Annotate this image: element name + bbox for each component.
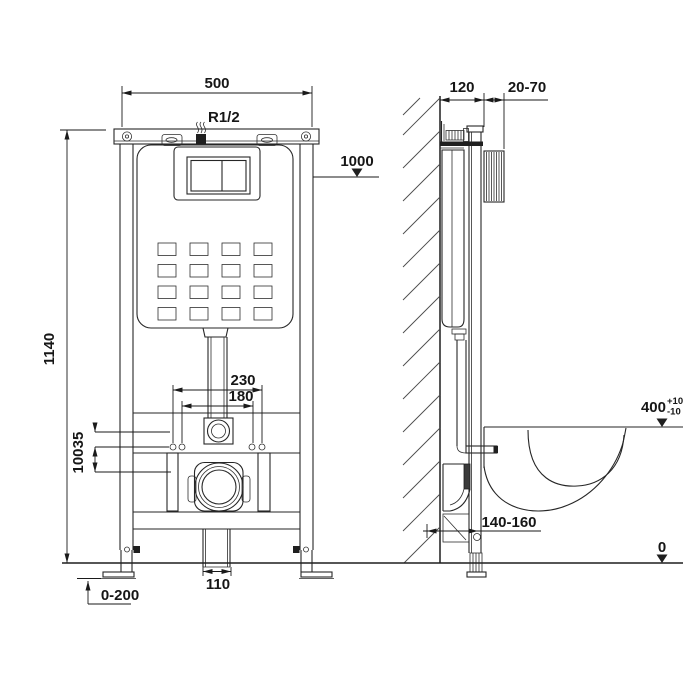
outlet-duct	[203, 529, 230, 567]
adjustable-foot-left	[101, 550, 136, 579]
dim-duct-width: 110	[203, 567, 231, 593]
flush-plate	[174, 147, 260, 200]
dim-bolt-outer-label: 230	[230, 372, 255, 389]
waste-outlet-flange	[188, 463, 250, 512]
bowl-height-label: 400	[641, 399, 666, 416]
outlet-bend-side	[443, 464, 470, 542]
mounting-bolts	[170, 444, 265, 450]
floor-zero-label: 0	[658, 539, 666, 556]
dim-frame-width-label: 500	[204, 75, 229, 92]
side-view-drawing: 120 20-70 400 +10 -10 140-160 0	[403, 79, 683, 577]
front-view-drawing: 500 R1/2 1000 1140 230 180	[41, 75, 379, 604]
finish-plate-block	[484, 151, 504, 202]
dim-duct-width-label: 110	[206, 576, 230, 593]
adjustable-foot-right	[299, 550, 334, 579]
level-marker-1000: 1000	[313, 153, 379, 177]
adjustable-foot-side	[467, 553, 486, 577]
dim-frame-height: 1140	[41, 130, 106, 563]
locking-bolt	[293, 546, 300, 553]
dim-bolt-spacing: 230 180	[173, 372, 262, 443]
bowl-inlet-elbow	[204, 418, 233, 444]
dim-offset-100-label: 100	[70, 448, 87, 473]
dim-feet-range: 0-200	[77, 579, 139, 605]
dim-frame-depth-label: 120	[449, 79, 474, 96]
corner-screw-icon	[301, 132, 310, 141]
insulation-grid	[158, 243, 272, 320]
dim-offset-35-label: 35	[70, 432, 87, 449]
bowl-height-plus-label: +10	[667, 396, 683, 407]
water-inlet-valve-icon	[196, 122, 206, 144]
level-1000-label: 1000	[340, 153, 373, 170]
flush-pipe	[203, 328, 233, 444]
dim-outlet-range-label: 140-160	[481, 514, 536, 531]
dim-finish-range-label: 20-70	[508, 79, 546, 96]
toilet-bowl-profile	[484, 427, 683, 511]
rail-hole	[474, 534, 481, 541]
cistern-tank	[137, 145, 293, 328]
water-inlet-label: R1/2	[208, 109, 240, 126]
dim-frame-height-label: 1140	[41, 333, 58, 366]
dim-bolt-inner-label: 180	[228, 388, 253, 405]
dim-depth-and-finish: 120 20-70	[440, 79, 548, 149]
level-marker-seat-height: 400 +10 -10	[641, 396, 683, 427]
installation-drawing-page: 500 R1/2 1000 1140 230 180	[0, 0, 700, 700]
corner-screw-icon	[122, 132, 131, 141]
bowl-height-minus-label: -10	[667, 407, 681, 418]
flush-pipe-side	[457, 340, 498, 453]
dim-feet-range-label: 0-200	[101, 587, 139, 604]
locking-bolt	[134, 546, 141, 553]
installation-drawing: 500 R1/2 1000 1140 230 180	[0, 0, 700, 700]
wall-hatch	[403, 96, 440, 563]
tank-side-profile	[440, 148, 466, 340]
level-marker-floor: 0	[657, 539, 668, 563]
level-triangle-icon	[657, 419, 668, 428]
wall-anchor-bracket	[440, 121, 483, 146]
